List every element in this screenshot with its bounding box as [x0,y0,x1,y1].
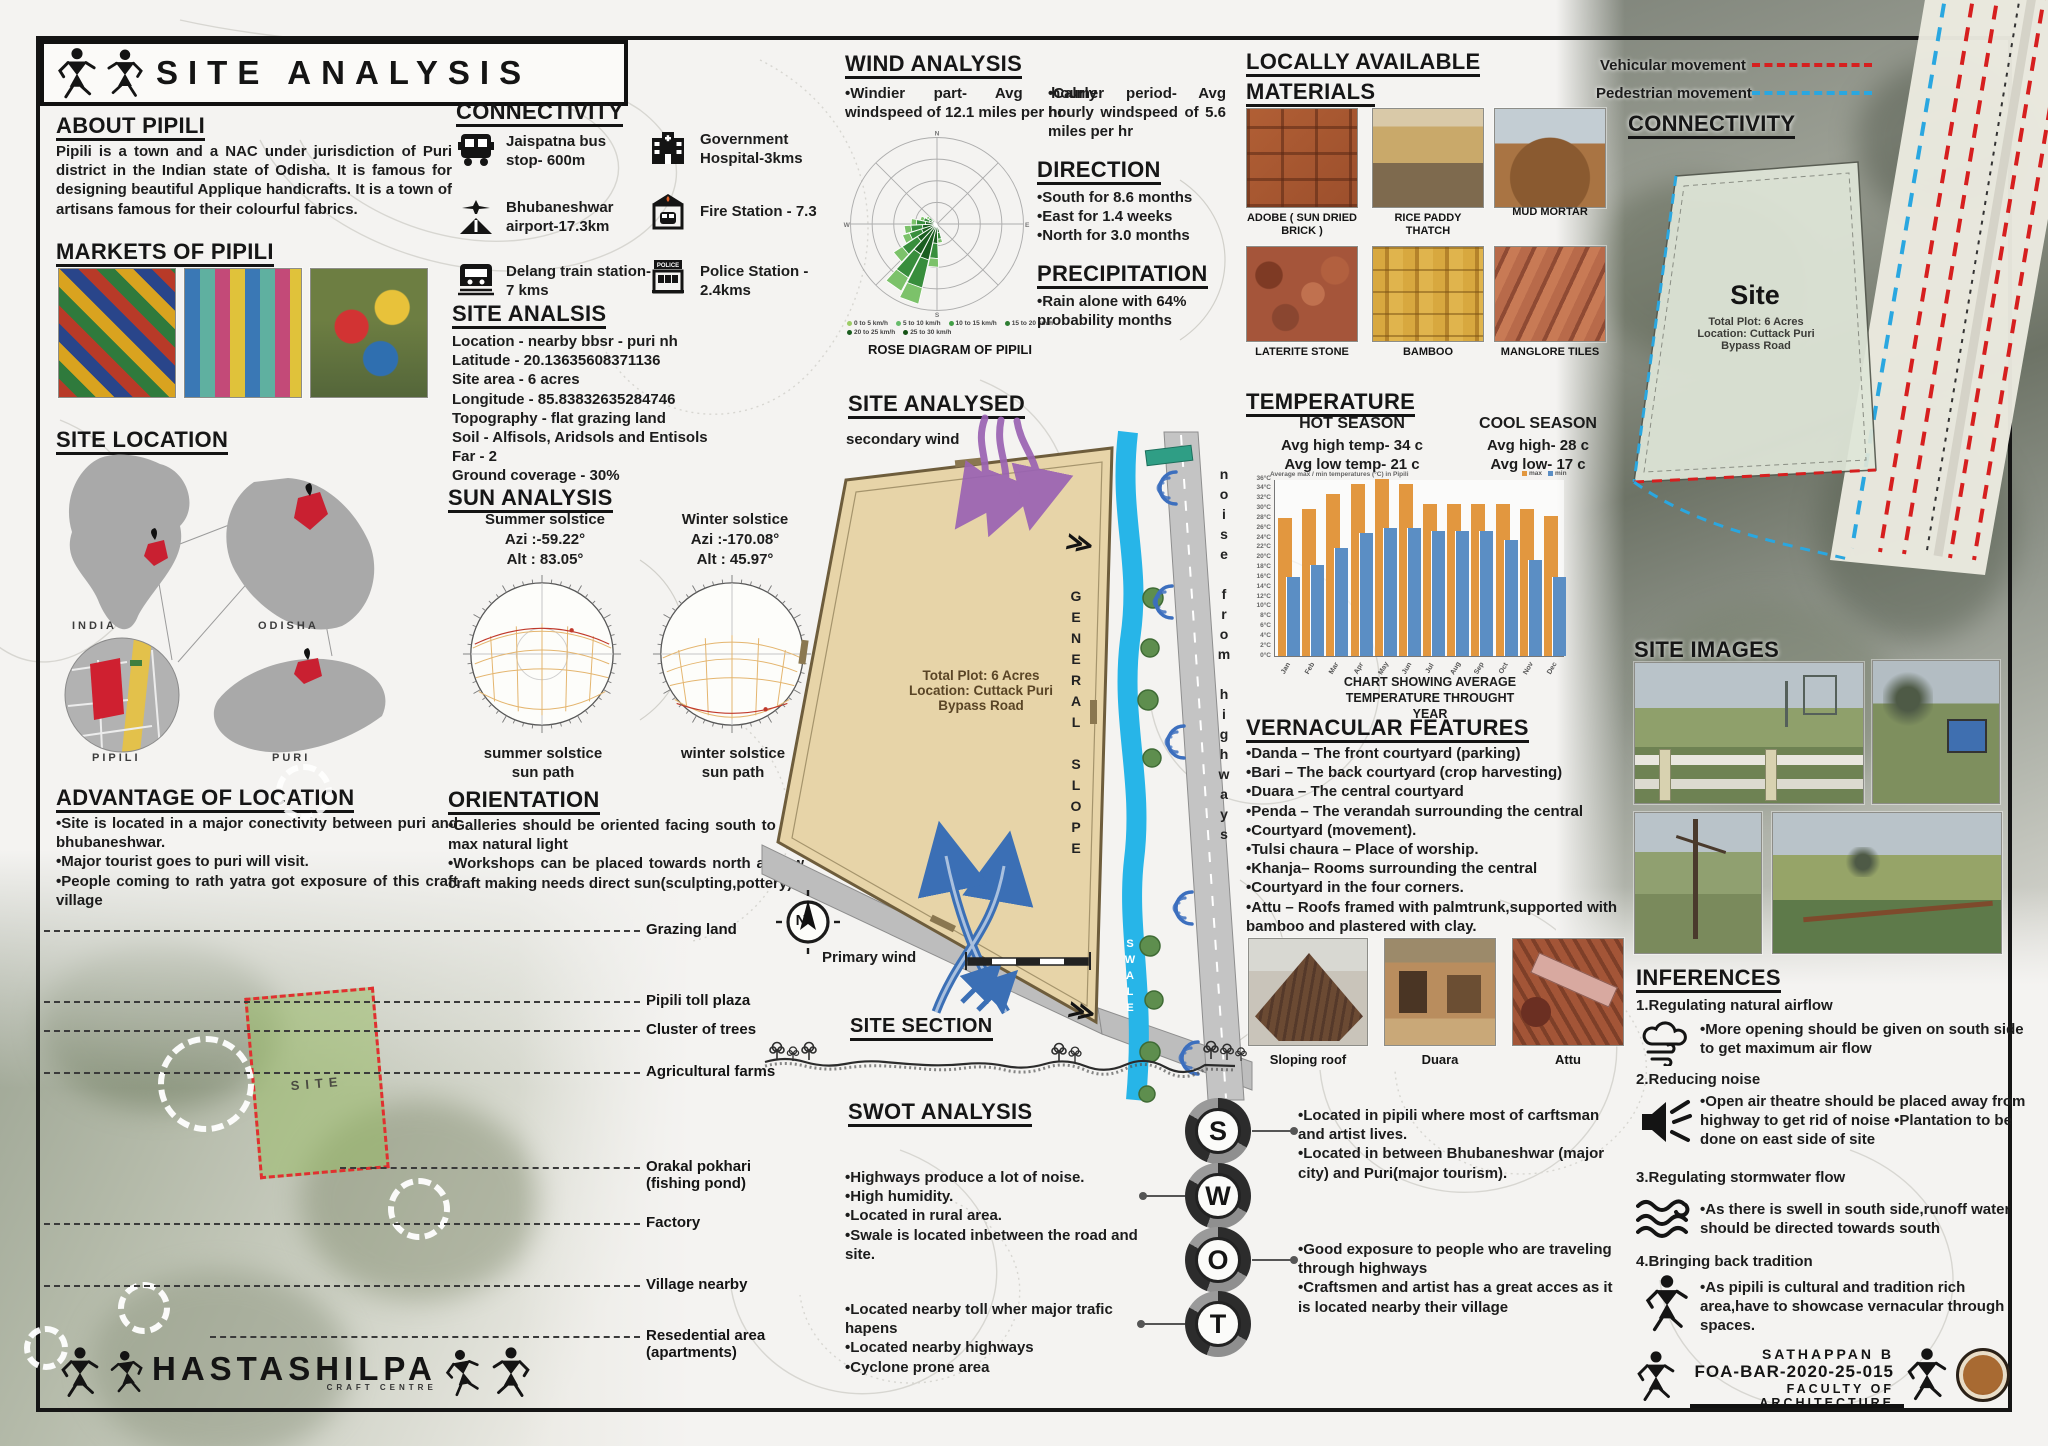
svg-text:N: N [935,131,940,138]
connectivity-item-label: Delang train station- 7 kms [506,262,656,300]
connectivity-item-label: Bhubaneshwar airport-17.3km [506,198,656,236]
svg-text:E: E [1025,222,1030,229]
pipili-street-map [65,633,179,758]
site-analysis-poster: SITE ANALYSIS ABOUT PIPILI Pipili is a t… [0,0,2048,1446]
brand-footer: HASTASHILPA CRAFT CENTRE [58,1346,533,1398]
vernacular-heading: VERNACULAR FEATURES [1246,716,1529,743]
train-icon [456,258,496,298]
swot-opportunity-item: •Good exposure to people who are traveli… [1298,1240,1620,1278]
noise-from-highways-label: noise from highways [1216,466,1232,1086]
vernacular-caption: Duara [1384,1052,1496,1068]
tribal-dancer-icon [58,1346,102,1398]
site-photo-3 [1634,812,1762,954]
rose-caption: ROSE DIAGRAM OF PIPILI [868,342,1032,357]
swot-connector [1141,1323,1185,1325]
callout-line [44,1223,640,1225]
tribal-dancer-icon [104,48,146,98]
rose-legend-item: 0 to 5 km/h [854,320,888,327]
swot-s-badge: S [1185,1098,1251,1164]
swot-opportunity-item: •Craftsmen and artist has a great acces … [1298,1278,1620,1316]
summer-sun-path-caption: summer solstice sun path [468,744,618,782]
site-analsis-line: Longitude - 85.83832635284746 [452,390,852,409]
callout-line [44,1072,640,1074]
aerial-site-polygon: SITE [244,987,389,1180]
puri-label: PURI [272,752,310,764]
general-slope-label: GENERAL SLOPE [1068,588,1084,1018]
vernacular-item: •Penda – The verandah surrounding the ce… [1246,802,1646,821]
callout-line [44,1285,640,1287]
inference-title: 3.Regulating stormwater flow [1636,1168,1845,1187]
site-marker-circle [388,1178,450,1240]
callout-label: Pipili toll plaza [646,992,750,1009]
callout-line [44,1030,640,1032]
orientation-item: •Workshops can be placed towards north a… [448,854,804,892]
orientation-item: •Galleries should be oriented facing sou… [448,816,804,854]
direction-item: •East for 1.4 weeks [1037,207,1227,226]
wind-analysis-heading: WIND ANALYSIS [845,52,1022,79]
location-maps [42,450,414,782]
inference-bullets: •As there is swell in south side,runoff … [1700,1200,2048,1238]
vernacular-item: •Tulsi chaura – Place of worship. [1246,840,1646,859]
swot-weakness-item: •Located in rural area. [845,1206,1147,1225]
swot-strength-item: •Located in between Bhubaneshwar (major … [1298,1144,1620,1182]
advantage-item: •Major tourist goes to puri will visit. [56,852,458,871]
airport-icon [456,196,496,236]
material-caption: RICE PADDY THATCH [1372,212,1484,238]
site-marker-circle [118,1282,170,1334]
vernacular-item: •Courtyard (movement). [1246,821,1646,840]
primary-wind-label: Primary wind [822,948,916,967]
vernacular-photo-attu [1512,938,1624,1046]
svg-text:S: S [935,312,940,318]
swot-weakness-item: •High humidity. [845,1187,1147,1206]
vernacular-photo-sloping-roof [1248,938,1368,1046]
swot-strength-item: •Located in pipili where most of carftsm… [1298,1106,1620,1144]
tribal-dancer-icon [1634,1350,1678,1402]
swot-w-badge: W [1185,1163,1251,1229]
rose-legend-item: 25 to 30 km/h [910,329,951,336]
wind-rose-legend: 0 to 5 km/h 5 to 10 km/h 10 to 15 km/h 1… [847,320,1057,336]
police-station-icon: POLICE [648,256,688,296]
brand-name: HASTASHILPA [152,1352,437,1385]
swot-threat-item: •Located nearby highways [845,1338,1157,1357]
about-heading: ABOUT PIPILI [56,114,205,141]
callout-line [210,1336,640,1338]
vernacular-caption: Sloping roof [1248,1052,1368,1068]
connectivity-item-label: Jaispatna bus stop- 600m [506,132,646,170]
callout-label: Factory [646,1214,700,1231]
summer-altitude: Alt : 83.05° [465,550,625,569]
odisha-label: ODISHA [258,620,319,632]
material-photo-thatch [1372,108,1484,208]
material-caption: BAMBOO [1372,346,1484,359]
connectivity-heading: CONNECTIVITY [456,100,623,127]
vernacular-photo-duara [1384,938,1496,1046]
inference-bullets: •More opening should be given on south s… [1700,1020,2035,1058]
secondary-wind-label: secondary wind [846,430,959,449]
direction-heading: DIRECTION [1037,158,1161,185]
callout-label: Village nearby [646,1276,747,1293]
site-analsis-line: Latitude - 20.13635608371136 [452,351,852,370]
author-footer: SATHAPPAN B FOA-BAR-2020-25-015 FACULTY … [1630,1342,2012,1412]
callout-label: Cluster of trees [646,1021,756,1038]
material-photo-laterite [1246,246,1358,342]
connectivity-item-label: Government Hospital-3kms [700,130,840,168]
vernacular-item: •Khanja– Rooms surrounding the central [1246,859,1646,878]
material-photo-bamboo [1372,246,1484,342]
precipitation-text: •Rain alone with 64% probability months [1037,292,1197,330]
site-photo-1 [1634,662,1864,804]
fire-station-icon [648,192,688,232]
callout-line [44,930,640,932]
rose-legend-item: 5 to 10 km/h [903,320,941,327]
inference-title: 2.Reducing noise [1636,1070,1760,1089]
vernacular-caption: Attu [1512,1052,1624,1068]
connectivity-item-label: Fire Station - 7.3 [700,202,850,221]
vernacular-item: •Bari – The back courtyard (crop harvest… [1246,763,1646,782]
about-text: Pipili is a town and a NAC under jurisdi… [56,142,452,219]
tribal-dancer-icon [489,1346,533,1398]
wind-cloud-icon [1640,1018,1692,1066]
connectivity-site-subtext: Total Plot: 6 Acres Location: Cuttack Pu… [1678,316,1834,352]
site-photo-2 [1872,660,2000,804]
inference-bullets: •Open air theatre should be placed away … [1700,1092,2048,1150]
material-caption: ADOBE ( SUN DRIED BRICK ) [1246,212,1358,238]
temperature-bar-chart: 0°C2°C4°C6°C8°C10°C12°C14°C16°C18°C20°C2… [1274,480,1564,657]
page-title: SITE ANALYSIS [156,54,531,92]
swot-connector [1252,1259,1294,1261]
swot-weakness-item: •Swale is located inbetween the road and… [845,1226,1147,1264]
rose-legend-item: 20 to 25 km/h [854,329,895,336]
site-analsis-heading: SITE ANALSIS [452,302,606,329]
site-marker-circle [276,764,332,820]
tribal-dancer-icon [54,47,100,99]
callout-label: Orakal pokhari (fishing pond) [646,1158,751,1193]
site-plot [778,448,1112,1022]
svg-text:W: W [844,222,851,229]
direction-item: •South for 8.6 months [1037,188,1227,207]
india-label: INDIA [72,620,117,632]
swot-connector [1252,1130,1294,1132]
callout-label: Resedential area (apartments) [646,1327,765,1362]
author-code: FOA-BAR-2020-25-015 [1694,1362,1894,1382]
title-box: SITE ANALYSIS [40,40,628,106]
inference-title: 4.Bringing back tradition [1636,1252,1813,1271]
plot-info-text: Total Plot: 6 Acres Location: Cuttack Pu… [905,668,1057,713]
callout-line [340,1167,640,1169]
author-name: SATHAPPAN B [1694,1346,1894,1362]
swot-weakness-item: •Highways produce a lot of noise. [845,1168,1147,1187]
callout-label: Grazing land [646,921,737,938]
callout-line [44,1001,640,1003]
site-photo-4 [1772,812,2002,954]
inference-title: 1.Regulating natural airflow [1636,996,1833,1015]
wind-calmer-text: •Calmer period- Avg hourly windspeed of … [1048,84,1226,142]
temp-chart-title: Average max / min temperatures (°C) in P… [1270,471,1409,478]
speaker-noise-icon [1638,1094,1694,1150]
advantage-item: •Site is located in a major conectivity … [56,814,458,852]
connectivity-item-label: Police Station - 2.4kms [700,262,850,300]
market-photo-3 [310,268,428,398]
site-analsis-line: Location - nearby bbsr - puri nh [452,332,852,351]
compass-north-label: N [792,912,810,929]
precipitation-heading: PRECIPITATION [1037,262,1208,289]
site-marker-circle [158,1036,254,1132]
bus-icon [456,130,496,170]
wind-rose-diagram: NSWE [843,130,1031,318]
market-photo-1 [58,268,176,398]
hospital-icon [648,128,688,168]
university-logo [1956,1348,2010,1402]
materials-heading-line2: MATERIALS [1246,80,1375,107]
tribal-figure-icon [1642,1274,1692,1332]
swot-threat-item: •Cyclone prone area [845,1358,1157,1377]
tribal-dancer-icon [439,1345,487,1399]
swot-heading: SWOT ANALYSIS [848,1100,1032,1127]
vernacular-item: •Danda – The front courtyard (parking) [1246,744,1646,763]
inference-bullets: •As pipili is cultural and tradition ric… [1700,1278,2035,1336]
connectivity-site-title: Site [1700,280,1810,311]
swale-label: SWALE [1124,938,1136,1108]
swot-threat-item: •Located nearby toll wher major trafic h… [845,1300,1157,1338]
water-waves-icon [1636,1192,1694,1242]
direction-item: •North for 3.0 months [1037,226,1227,245]
rose-legend-item: 10 to 15 km/h [956,320,997,327]
hot-season-high: Avg high temp- 34 c [1254,436,1450,455]
hot-season-title: HOT SEASON [1262,414,1442,434]
material-caption: LATERITE STONE [1246,346,1358,359]
vernacular-item: •Attu – Roofs framed with palmtrunk,supp… [1246,898,1646,936]
swot-connector [1143,1195,1185,1197]
materials-heading-line1: LOCALLY AVAILABLE [1246,50,1480,77]
advantage-item: •People coming to rath yatra got exposur… [56,872,458,910]
site-section-sketch [763,1028,1255,1080]
vernacular-item: •Duara – The central courtyard [1246,782,1646,801]
site-analsis-line: Site area - 6 acres [452,370,852,389]
summer-sun-path-diagram [458,570,626,738]
svg-text:POLICE: POLICE [657,263,679,269]
tribal-dancer-icon [1904,1346,1950,1402]
swot-o-badge: O [1185,1227,1251,1293]
inferences-heading: INFERENCES [1636,966,1781,993]
market-photo-2 [184,268,302,398]
markets-heading: MARKETS OF PIPILI [56,240,274,267]
india-map [69,455,190,630]
swot-t-badge: T [1185,1291,1251,1357]
callout-label: Agricultural farms [646,1063,775,1080]
material-photo-adobe [1246,108,1358,208]
vernacular-item: •Courtyard in the four corners. [1246,878,1646,897]
summer-solstice-title: Summer solstice [465,510,625,529]
tribal-dancer-icon [105,1347,149,1398]
orientation-heading: ORIENTATION [448,788,600,815]
pipili-label: PIPILI [92,752,141,764]
aerial-site-label: SITE [290,1073,344,1093]
summer-azimuth: Azi :-59.22° [465,530,625,549]
site-analysed-plan [760,410,1255,1110]
